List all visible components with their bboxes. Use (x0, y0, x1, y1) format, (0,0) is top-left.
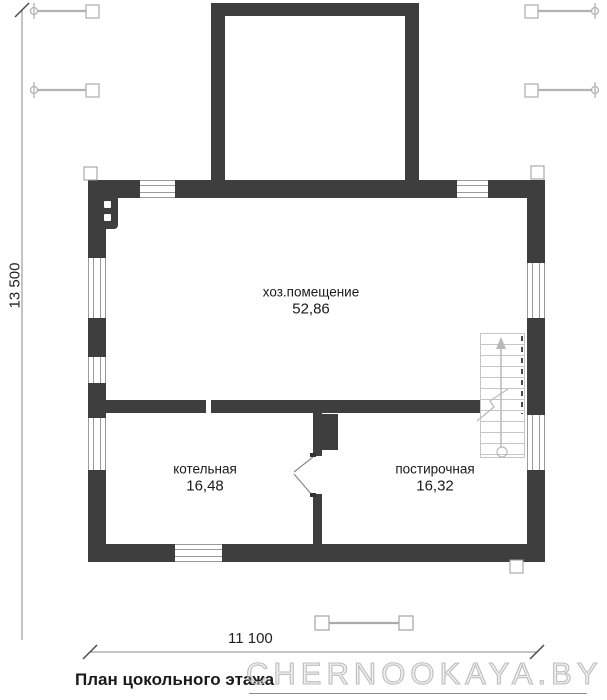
interior-wall-segment (313, 494, 322, 544)
formwork-tie-icon (31, 82, 100, 98)
window (527, 415, 545, 470)
staircase (480, 333, 525, 458)
room-name: постирочная (395, 462, 474, 477)
window (88, 258, 106, 318)
wall-segment (222, 544, 545, 562)
wall-segment (527, 180, 545, 263)
window (88, 418, 106, 470)
formwork-tie-icon (525, 3, 599, 19)
flue-opening (104, 214, 111, 221)
wall-segment (88, 318, 106, 357)
chimney-block (322, 414, 338, 450)
window (457, 180, 488, 198)
dimension-width-label: 11 100 (228, 630, 273, 647)
wall-segment (175, 180, 457, 198)
formwork-tie-icon (315, 616, 413, 630)
room-area: 52,86 (292, 301, 330, 318)
dimension-height-label: 13 500 (7, 256, 24, 316)
room-name: котельная (173, 462, 237, 477)
wall-segment (88, 383, 106, 418)
wall-segment (88, 544, 175, 562)
interior-wall-segment (106, 400, 206, 413)
watermark-underline (249, 693, 587, 694)
formwork-tie-icon (31, 3, 100, 19)
annex-wall-segment (405, 3, 419, 182)
floor-plan-canvas: хоз.помещение 52,86 котельная 16,48 пост… (0, 0, 607, 700)
room-area: 16,48 (186, 478, 224, 495)
room-name: хоз.помещение (263, 285, 359, 300)
watermark: CHERNOOKAYA.BY (246, 656, 603, 692)
door-hinge (310, 453, 316, 497)
annex-wall-segment (211, 3, 419, 16)
formwork-tie-icon (525, 82, 599, 98)
flue-opening (104, 201, 111, 208)
window (140, 180, 175, 198)
window (527, 263, 545, 318)
room-area: 16,32 (416, 478, 454, 495)
door-swing (294, 457, 313, 495)
interior-wall-segment (211, 400, 480, 413)
dimension-tick (15, 3, 29, 17)
interior-wall-segment (313, 413, 322, 456)
window (88, 357, 106, 383)
annex-wall-segment (211, 3, 225, 182)
plan-title: План цокольного этажа (75, 670, 274, 690)
wall-segment (527, 318, 545, 415)
window (175, 544, 222, 562)
